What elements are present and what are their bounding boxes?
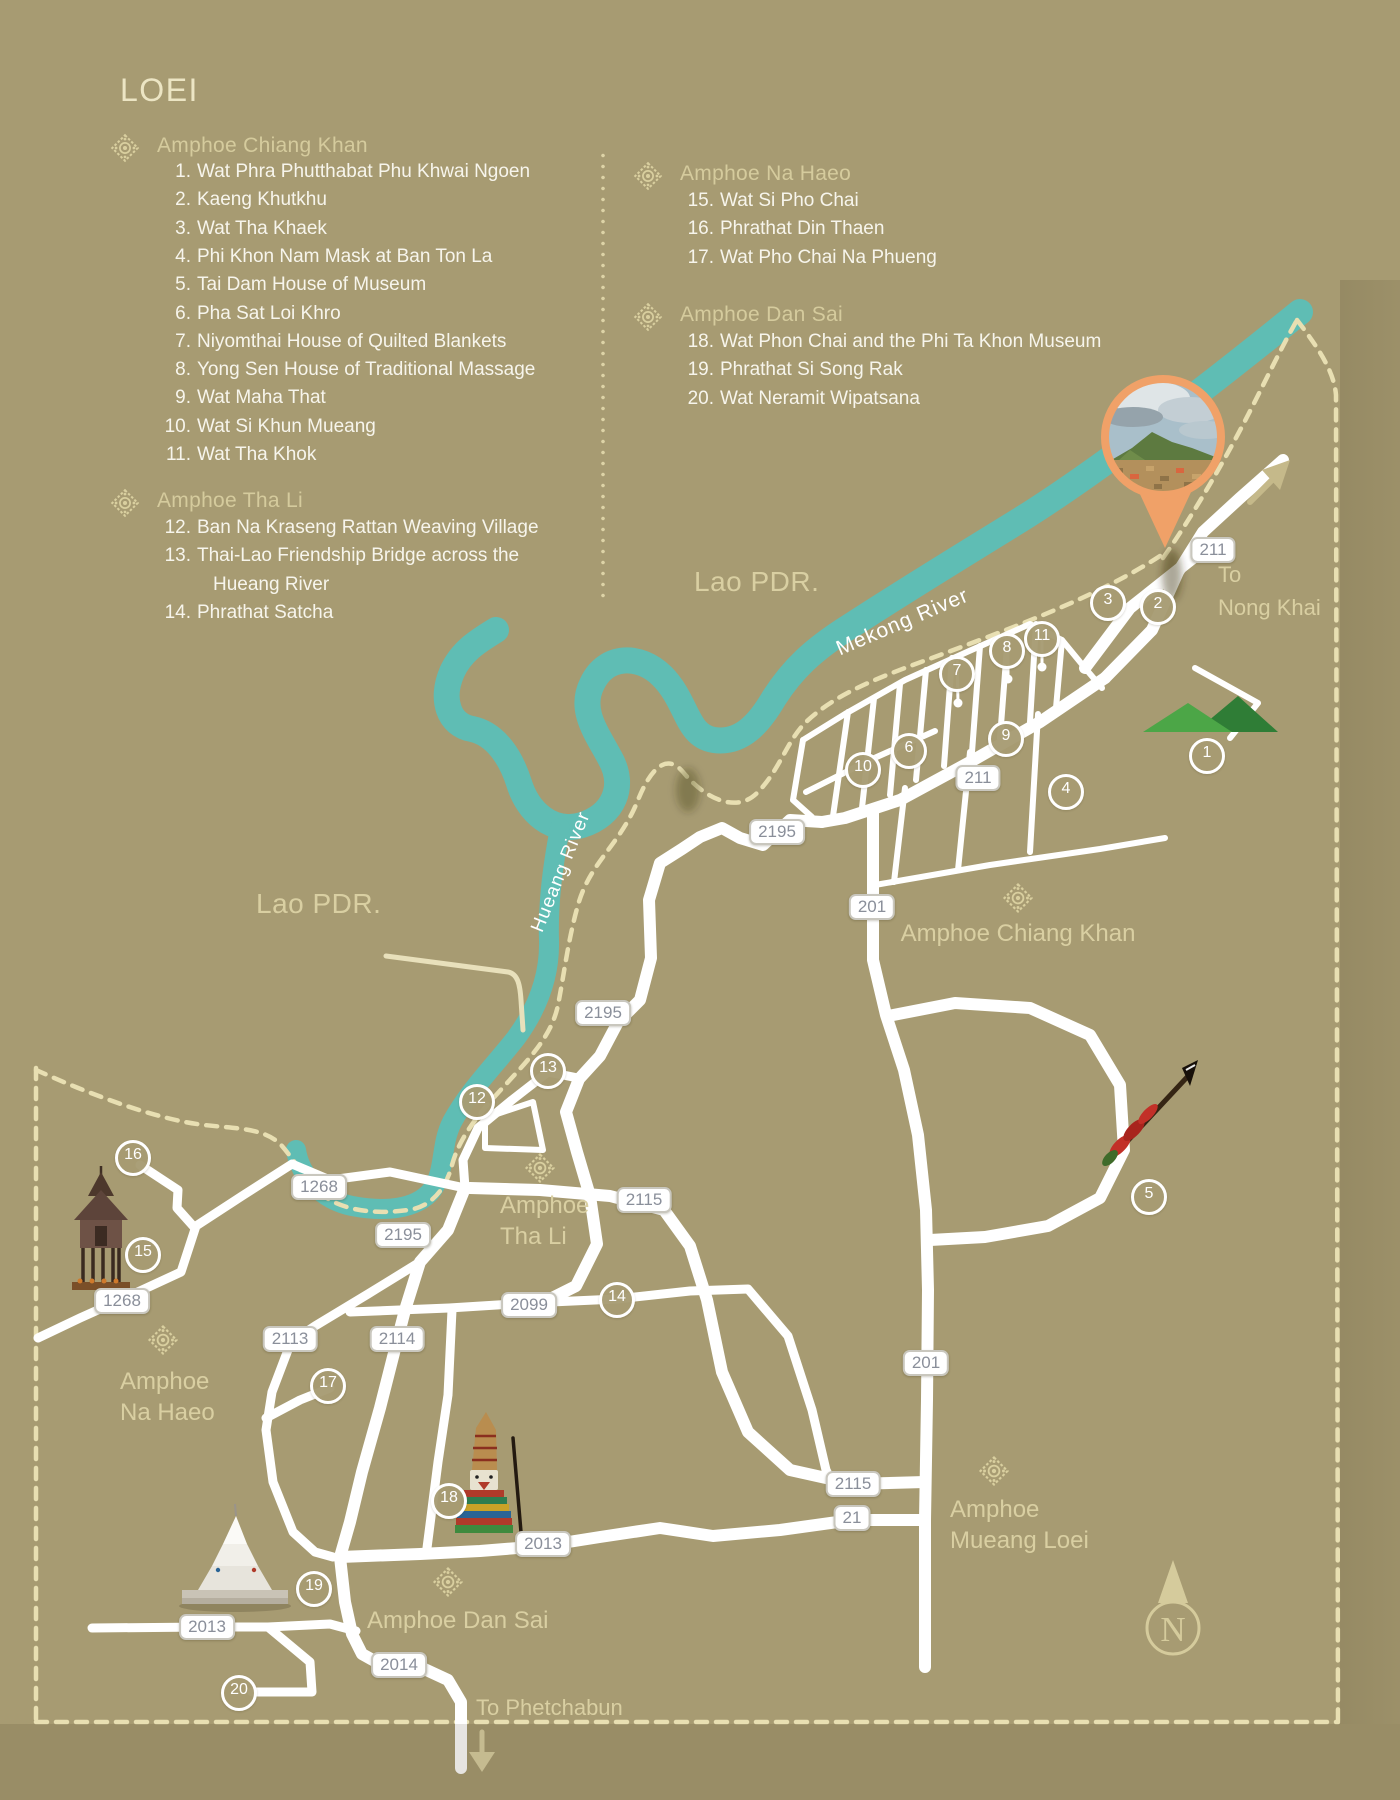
legend-section-title: Amphoe Na Haeo: [680, 162, 851, 186]
legend-item: 2.Kaeng Khutkhu: [157, 189, 327, 217]
label-tha-li: Tha Li: [500, 1221, 589, 1252]
route-badge-2014: 2014: [371, 1652, 427, 1678]
poi-marker-13: 13: [530, 1053, 566, 1089]
label-amphoe-na-haeo: Amphoe Na Haeo: [120, 1366, 215, 1428]
legend-item: 9.Wat Maha That: [157, 387, 326, 415]
route-badge-2195: 2195: [375, 1222, 431, 1248]
legend-item: 13.Thai-Lao Friendship Bridge across the: [157, 545, 519, 573]
rosette-ornament-icon: [522, 1150, 558, 1186]
compass-north-letter: N: [1160, 1610, 1185, 1649]
poi-marker-19: 19: [296, 1571, 332, 1607]
label-amphoe-chiang-khan: Amphoe Chiang Khan: [850, 918, 1186, 949]
poi-marker-3: 3: [1090, 585, 1126, 621]
legend-item: 10.Wat Si Khun Mueang: [157, 416, 376, 444]
rosette-ornament-icon: [976, 1453, 1012, 1489]
label-amphoe: Amphoe: [120, 1366, 215, 1397]
poi-marker-12: 12: [459, 1084, 495, 1120]
route-badge-2113: 2113: [263, 1326, 318, 1352]
rosette-ornament-icon: [108, 131, 142, 165]
route-badge-211: 211: [1190, 537, 1235, 563]
legend-item: 18.Wat Phon Chai and the Phi Ta Khon Mus…: [680, 331, 1101, 359]
legend-section-title: Amphoe Tha Li: [157, 489, 303, 513]
poi-marker-8: 8: [989, 633, 1025, 669]
legend-column-divider: [601, 150, 605, 602]
label-to-phetchabun: To Phetchabun: [476, 1691, 623, 1724]
legend-section-title: Amphoe Chiang Khan: [157, 134, 368, 158]
rosette-ornament-icon: [430, 1564, 466, 1600]
legend-item: 16.Phrathat Din Thaen: [680, 218, 884, 246]
label-amphoe-tha-li: Amphoe Tha Li: [500, 1190, 589, 1252]
legend-item: 7.Niyomthai House of Quilted Blankets: [157, 331, 506, 359]
poi-marker-5: 5: [1131, 1179, 1167, 1215]
route-badge-2013: 2013: [515, 1531, 571, 1557]
page-title: LOEI: [120, 72, 199, 109]
rosette-ornament-icon: [631, 159, 665, 193]
route-badge-2115: 2115: [826, 1471, 881, 1497]
legend-item: 19.Phrathat Si Song Rak: [680, 359, 903, 387]
legend-item: 1.Wat Phra Phutthabat Phu Khwai Ngoen: [157, 161, 530, 189]
label-nong-khai: Nong Khai: [1218, 591, 1321, 624]
poi-marker-2: 2: [1140, 589, 1176, 625]
trail-shadow: [676, 768, 700, 812]
route-badge-1268: 1268: [291, 1174, 347, 1200]
label-amphoe-mueang-loei: Amphoe Mueang Loei: [950, 1494, 1089, 1556]
south-arrow-icon: [469, 1732, 495, 1772]
poi-marker-9: 9: [988, 721, 1024, 757]
legend-item: 4.Phi Khon Nam Mask at Ban Ton La: [157, 246, 492, 274]
poi-marker-14: 14: [599, 1282, 635, 1318]
rosette-ornament-icon: [108, 486, 142, 520]
lao-side-road: [386, 956, 523, 1030]
legend-item: 5.Tai Dam House of Museum: [157, 274, 426, 302]
label-amphoe-dan-sai: Amphoe Dan Sai: [367, 1605, 548, 1636]
poi-marker-6: 6: [891, 733, 927, 769]
route-badge-2115: 2115: [617, 1187, 672, 1213]
legend-item: 8.Yong Sen House of Traditional Massage: [157, 359, 535, 387]
route-badge-2099: 2099: [501, 1292, 557, 1318]
label-lao-pdr-west: Lao PDR.: [256, 888, 381, 920]
poi-marker-7: 7: [939, 656, 975, 692]
route-badge-21: 21: [834, 1505, 871, 1531]
legend-item: 20.Wat Neramit Wipatsana: [680, 388, 920, 416]
route-badge-201: 201: [849, 894, 895, 920]
label-lao-pdr-north: Lao PDR.: [694, 566, 819, 598]
label-to: To: [1218, 558, 1321, 591]
rosette-ornament-icon: [145, 1322, 181, 1358]
legend-item: 14.Phrathat Satcha: [157, 602, 333, 630]
legend-item: 17.Wat Pho Chai Na Phueng: [680, 247, 937, 275]
legend-item: 12.Ban Na Kraseng Rattan Weaving Village: [157, 517, 539, 545]
route-badge-211: 211: [955, 765, 1000, 791]
route-badge-2114: 2114: [370, 1326, 425, 1352]
phi-ta-khon-mask-icon: [455, 1412, 521, 1533]
photo-location-marker: [1103, 379, 1231, 601]
route-badge-2013: 2013: [179, 1614, 235, 1640]
poi-marker-11: 11: [1024, 621, 1060, 657]
legend-item: 3.Wat Tha Khaek: [157, 218, 327, 246]
route-badge-201: 201: [903, 1350, 949, 1376]
route-badge-2195: 2195: [749, 819, 805, 845]
rosette-ornament-icon: [1000, 880, 1036, 916]
poi-marker-15: 15: [125, 1237, 161, 1273]
label-na-haeo: Na Haeo: [120, 1397, 215, 1428]
route-badge-1268: 1268: [94, 1288, 150, 1314]
route-badge-2195: 2195: [575, 1000, 631, 1026]
poi-marker-10: 10: [845, 752, 881, 788]
poi-marker-20: 20: [221, 1675, 257, 1711]
label-mueang-loei: Mueang Loei: [950, 1525, 1089, 1556]
label-amphoe: Amphoe: [950, 1494, 1089, 1525]
white-pagoda-icon: [179, 1504, 291, 1612]
compass-rose: N: [1147, 1560, 1199, 1654]
legend-item: 15.Wat Si Pho Chai: [680, 190, 859, 218]
poi-marker-17: 17: [310, 1368, 346, 1404]
legend-item: 6.Pha Sat Loi Khro: [157, 303, 341, 331]
temple-shrine-icon: [72, 1166, 130, 1290]
poi-marker-18: 18: [431, 1483, 467, 1519]
legend-item: Hueang River: [157, 574, 329, 602]
label-amphoe: Amphoe: [500, 1190, 589, 1221]
legend-item: 11.Wat Tha Khok: [157, 444, 316, 472]
legend-section-title: Amphoe Dan Sai: [680, 303, 843, 327]
label-to-nong-khai: To Nong Khai: [1218, 558, 1321, 624]
poi-marker-1: 1: [1189, 738, 1225, 774]
rosette-ornament-icon: [631, 300, 665, 334]
poi-marker-16: 16: [115, 1140, 151, 1176]
poi-marker-4: 4: [1048, 774, 1084, 810]
